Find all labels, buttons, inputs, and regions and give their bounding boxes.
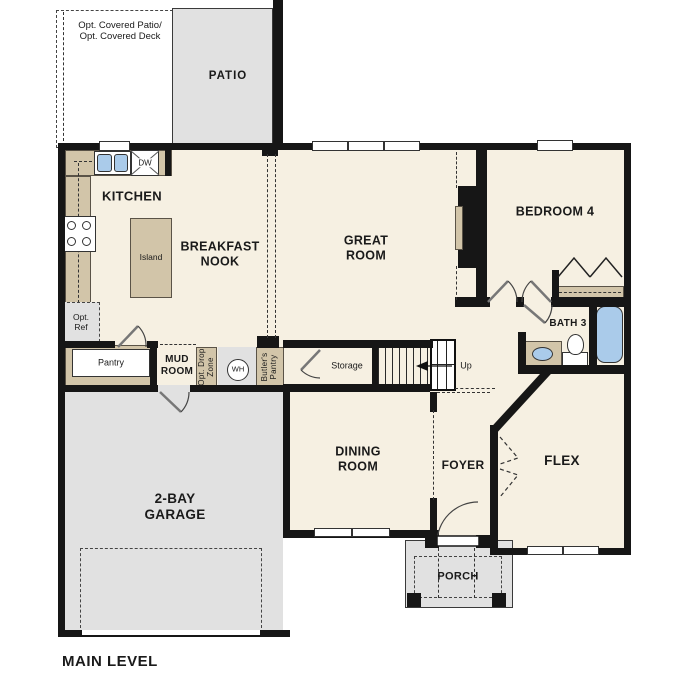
porch-label: PORCH [437, 571, 478, 584]
great-room-dash [456, 152, 457, 188]
window [352, 528, 390, 537]
window [312, 141, 348, 151]
floor-plan: Opt. Covered Patio/ Opt. Covered Deck PA… [0, 0, 687, 687]
level-title: MAIN LEVEL [62, 653, 158, 671]
breakfast-nook-label: BREAKFAST NOOK [180, 239, 259, 269]
nook-great-opening-dash [275, 154, 276, 338]
stair-landing [430, 339, 456, 391]
burner [82, 221, 91, 230]
mud-room-label: MUD ROOM [161, 354, 193, 378]
stair-landing-tread [437, 341, 438, 389]
wall [165, 150, 171, 176]
great-room-label: GREAT ROOM [344, 233, 388, 263]
closet-rod-dash [559, 292, 621, 293]
toilet-bowl [567, 334, 584, 355]
mud-room-dash [160, 344, 196, 345]
wall [552, 270, 559, 300]
vanity-sink [532, 347, 553, 361]
stair-treads [378, 348, 432, 384]
porch-post [492, 593, 506, 607]
wall [516, 297, 524, 307]
patio-label: PATIO [209, 70, 247, 84]
water-heater-label: WH [232, 366, 245, 375]
storage-label: Storage [331, 361, 363, 372]
island-label: Island [140, 252, 163, 262]
wall [283, 340, 433, 348]
window [384, 141, 420, 151]
sink-basin [114, 154, 128, 172]
fireplace-insert [455, 206, 463, 250]
foyer-label: FOYER [442, 458, 485, 472]
butlers-pantry-label: Butler's Pantry [261, 353, 279, 382]
garage-label: 2-BAY GARAGE [144, 491, 205, 523]
wall [455, 297, 490, 307]
bathtub [596, 306, 623, 363]
window [527, 546, 563, 555]
wall [283, 392, 290, 538]
kitchen-label: KITCHEN [102, 188, 162, 203]
cooktop [62, 216, 96, 252]
wall [425, 530, 439, 548]
bedroom4-label: BEDROOM 4 [516, 205, 594, 220]
wall [430, 392, 437, 412]
window [563, 546, 599, 555]
window [99, 141, 130, 151]
main-floor [283, 374, 497, 537]
wall [589, 303, 597, 365]
stair-landing-rail [432, 364, 454, 365]
burner [67, 237, 76, 246]
dishwasher-label: DW [137, 158, 152, 167]
wall [150, 347, 157, 387]
window [537, 140, 573, 151]
porch-post [407, 593, 421, 607]
great-room-dash [456, 266, 457, 300]
wall [430, 498, 437, 532]
window [348, 141, 384, 151]
wall [283, 384, 430, 392]
burner [82, 237, 91, 246]
opt-patio-label: Opt. Covered Patio/ Opt. Covered Deck [55, 20, 185, 42]
stair-landing-tread [446, 341, 447, 389]
foyer-dash [437, 392, 490, 393]
bath3-label: BATH 3 [549, 318, 586, 330]
wall [518, 365, 631, 374]
wall [58, 341, 115, 348]
flex-label: FLEX [544, 453, 580, 469]
sink-basin [97, 154, 112, 172]
pantry-label: Pantry [98, 358, 124, 369]
window [314, 528, 352, 537]
wall [372, 348, 378, 384]
garage-door-outline [80, 548, 262, 628]
wall [624, 143, 631, 555]
burner [67, 221, 76, 230]
opt-ref-label: Opt. Ref [73, 312, 89, 332]
up-label: Up [460, 361, 472, 372]
hall-dash [455, 388, 495, 389]
counter-dash [74, 161, 92, 162]
dining-foyer-opening-dash [433, 410, 434, 500]
garage-door-opening [82, 630, 260, 637]
wall [476, 535, 498, 548]
wall [273, 0, 283, 148]
dining-label: DINING ROOM [335, 444, 381, 474]
drop-zone-label: Opt. Drop Zone [198, 348, 216, 385]
nook-great-opening-dash [267, 154, 268, 338]
mud-garage-door-opening [158, 385, 190, 392]
